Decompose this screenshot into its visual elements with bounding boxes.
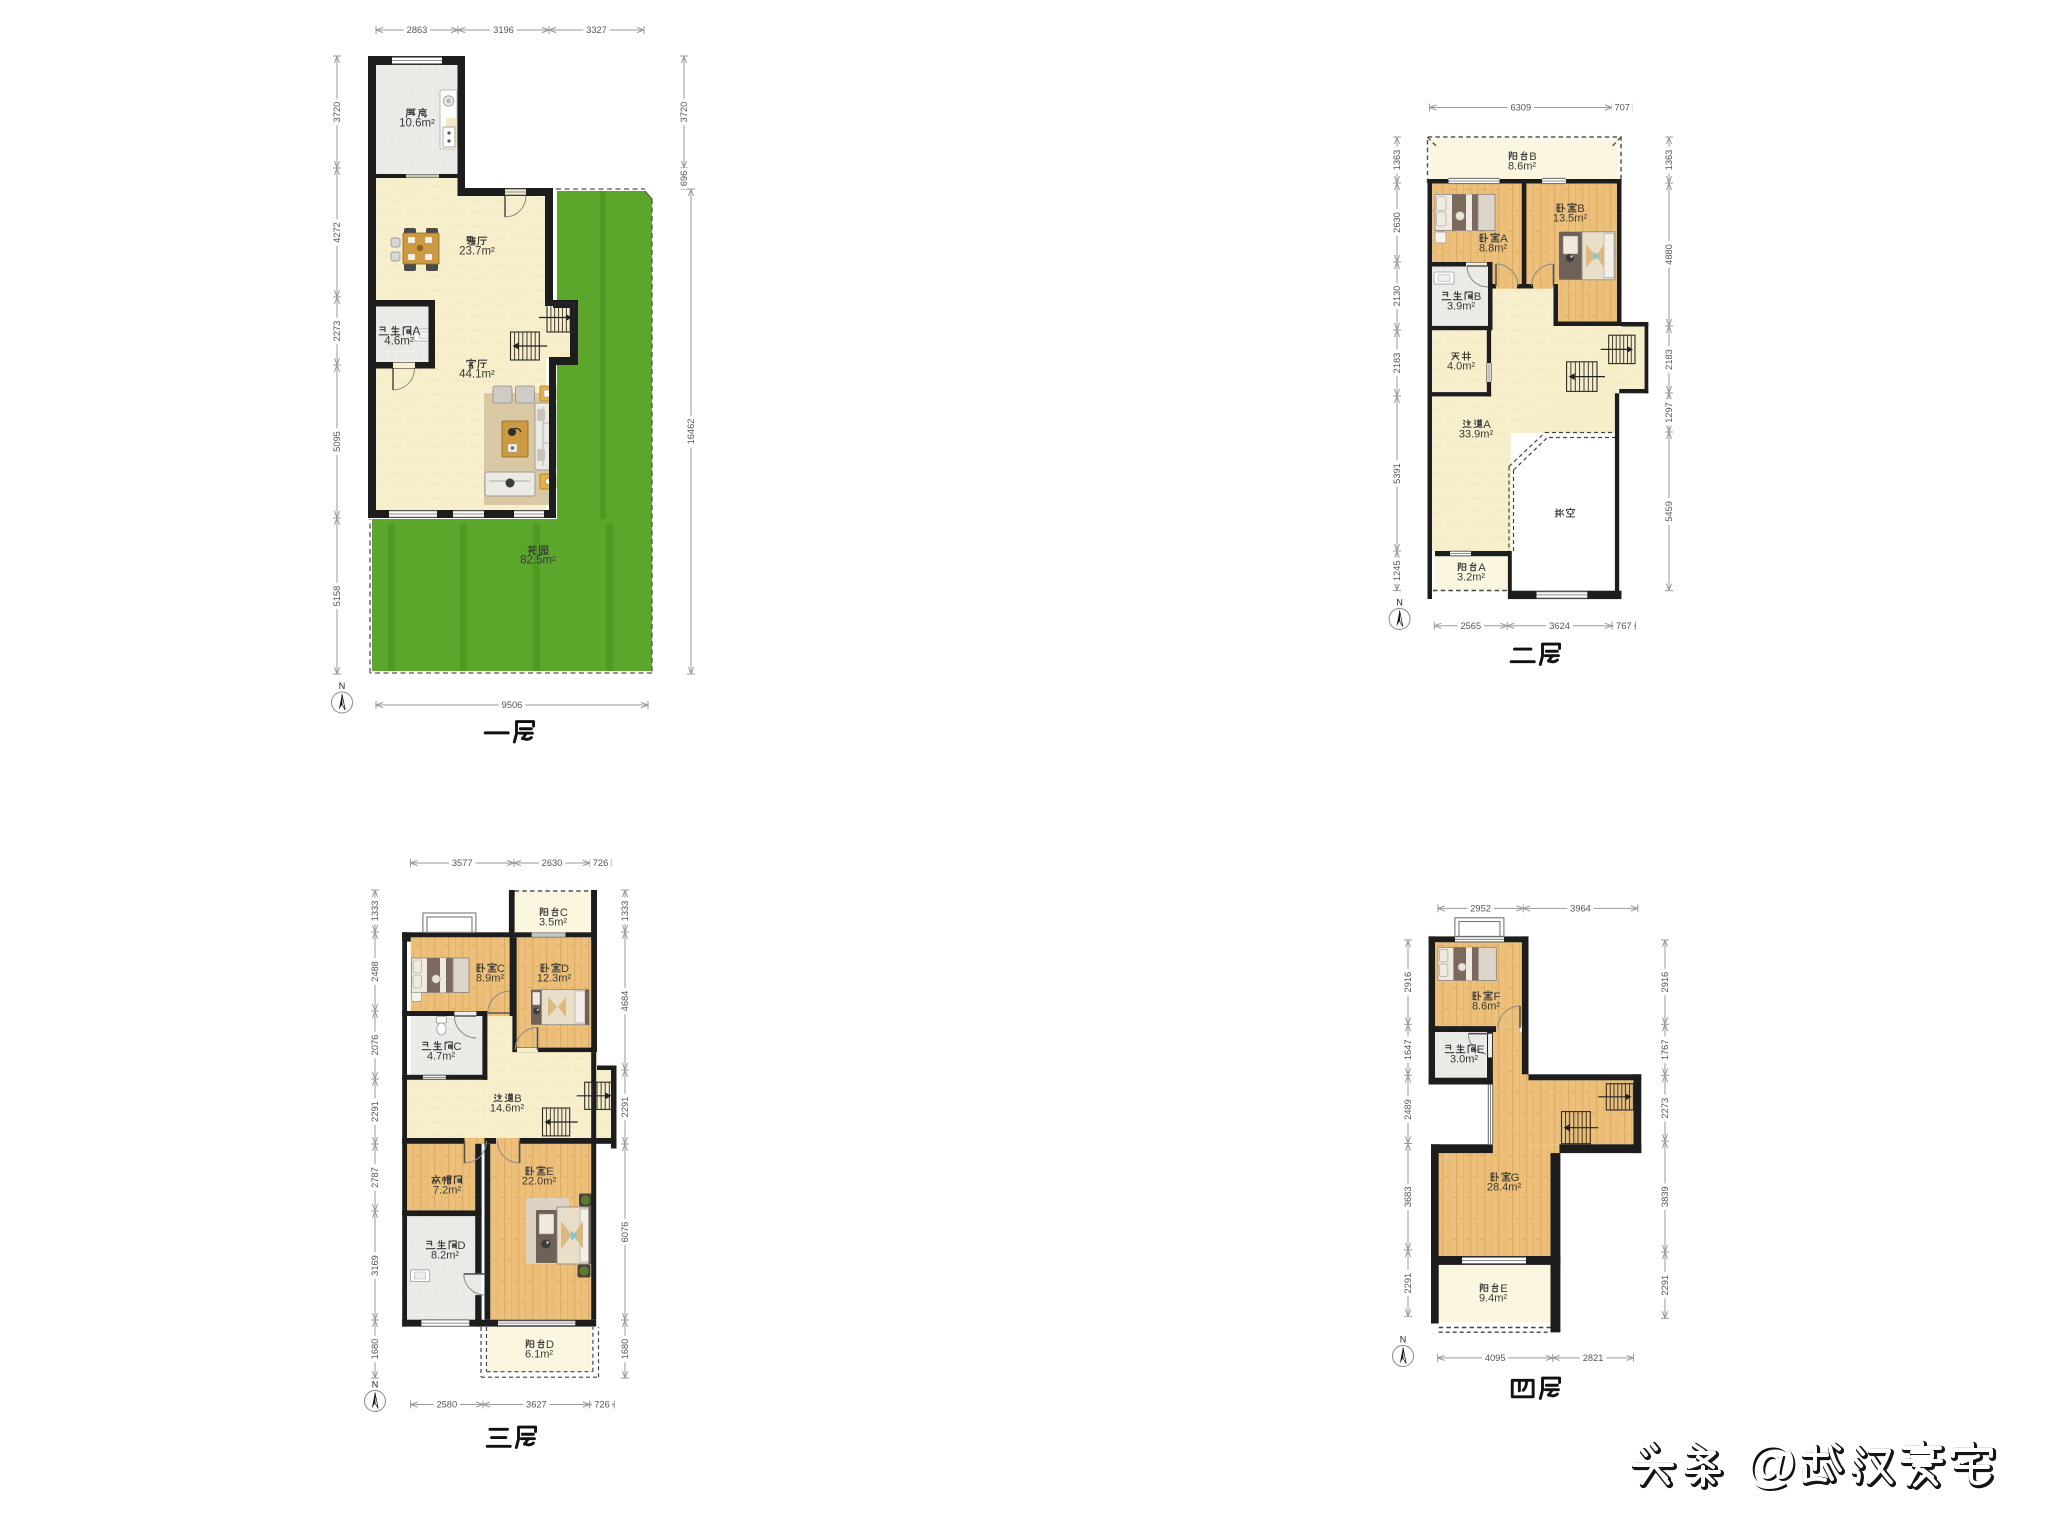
- svg-text:N: N: [1396, 598, 1403, 608]
- svg-text:3839: 3839: [1660, 1186, 1670, 1207]
- svg-text:1333: 1333: [370, 901, 380, 922]
- svg-text:3720: 3720: [679, 102, 689, 123]
- svg-text:33.9m²: 33.9m²: [1459, 429, 1494, 441]
- svg-text:1767: 1767: [1660, 1039, 1670, 1060]
- svg-text:2916: 2916: [1660, 972, 1670, 993]
- svg-text:8.2m²: 8.2m²: [431, 1250, 459, 1262]
- svg-text:726: 726: [594, 1400, 610, 1410]
- svg-text:2821: 2821: [1583, 1353, 1604, 1363]
- svg-text:8.6m²: 8.6m²: [1472, 1001, 1500, 1013]
- svg-text:5459: 5459: [1664, 501, 1674, 522]
- svg-text:22.0m²: 22.0m²: [522, 1176, 557, 1188]
- svg-text:2630: 2630: [1392, 212, 1402, 233]
- svg-text:4.7m²: 4.7m²: [427, 1051, 455, 1063]
- svg-text:4095: 4095: [1485, 1353, 1506, 1363]
- svg-text:10.6m²: 10.6m²: [399, 118, 435, 130]
- svg-text:3196: 3196: [493, 25, 514, 35]
- svg-text:2488: 2488: [370, 961, 380, 982]
- svg-text:16462: 16462: [686, 419, 696, 445]
- svg-text:5391: 5391: [1392, 463, 1402, 484]
- svg-text:2291: 2291: [1660, 1275, 1670, 1296]
- svg-text:3627: 3627: [526, 1400, 547, 1410]
- svg-text:696: 696: [679, 171, 689, 187]
- svg-text:7.2m²: 7.2m²: [433, 1185, 461, 1197]
- svg-text:5158: 5158: [332, 586, 342, 607]
- svg-text:767: 767: [1616, 621, 1632, 631]
- svg-text:1680: 1680: [620, 1339, 630, 1360]
- svg-text:2273: 2273: [1660, 1098, 1670, 1119]
- svg-text:3.0m²: 3.0m²: [1450, 1054, 1478, 1066]
- svg-text:1647: 1647: [1403, 1039, 1413, 1060]
- svg-text:2076: 2076: [370, 1035, 380, 1056]
- svg-text:8.9m²: 8.9m²: [476, 973, 504, 985]
- svg-text:1245: 1245: [1392, 560, 1402, 581]
- svg-text:6076: 6076: [620, 1222, 630, 1243]
- svg-text:N: N: [372, 1380, 379, 1390]
- svg-text:6.1m²: 6.1m²: [525, 1349, 553, 1361]
- svg-text:1680: 1680: [370, 1339, 380, 1360]
- svg-text:4.0m²: 4.0m²: [1447, 361, 1475, 373]
- svg-text:44.1m²: 44.1m²: [459, 369, 495, 381]
- svg-text:1333: 1333: [620, 901, 630, 922]
- svg-text:3683: 3683: [1403, 1186, 1413, 1207]
- svg-text:2273: 2273: [332, 321, 342, 342]
- svg-text:@: @: [1746, 1435, 1797, 1493]
- svg-text:3327: 3327: [586, 25, 607, 35]
- svg-text:8.6m²: 8.6m²: [1508, 161, 1536, 173]
- svg-text:2787: 2787: [370, 1167, 380, 1188]
- svg-text:2952: 2952: [1470, 904, 1491, 914]
- svg-text:N: N: [1400, 1335, 1407, 1345]
- svg-text:4.6m²: 4.6m²: [384, 336, 414, 348]
- svg-text:28.4m²: 28.4m²: [1487, 1182, 1522, 1194]
- svg-text:3169: 3169: [370, 1255, 380, 1276]
- svg-text:3.2m²: 3.2m²: [1457, 572, 1485, 584]
- svg-text:2183: 2183: [1392, 353, 1402, 374]
- svg-text:9506: 9506: [502, 700, 523, 710]
- svg-text:1363: 1363: [1664, 150, 1674, 171]
- svg-text:9.4m²: 9.4m²: [1479, 1293, 1507, 1305]
- svg-text:2580: 2580: [436, 1400, 457, 1410]
- svg-text:2565: 2565: [1460, 621, 1481, 631]
- svg-text:707: 707: [1614, 103, 1630, 113]
- svg-text:3720: 3720: [332, 102, 342, 123]
- svg-text:3577: 3577: [452, 858, 473, 868]
- svg-text:4880: 4880: [1664, 244, 1674, 265]
- svg-text:3964: 3964: [1570, 904, 1591, 914]
- svg-text:12.3m²: 12.3m²: [537, 973, 572, 985]
- svg-text:2183: 2183: [1664, 349, 1674, 370]
- svg-text:2130: 2130: [1392, 286, 1402, 307]
- svg-text:13.5m²: 13.5m²: [1553, 213, 1588, 225]
- svg-text:14.6m²: 14.6m²: [490, 1103, 525, 1115]
- svg-text:23.7m²: 23.7m²: [459, 246, 495, 258]
- svg-text:3624: 3624: [1549, 621, 1570, 631]
- svg-text:2916: 2916: [1403, 972, 1413, 993]
- svg-text:8.8m²: 8.8m²: [1479, 243, 1507, 255]
- svg-text:3.5m²: 3.5m²: [539, 917, 567, 929]
- svg-text:1363: 1363: [1392, 150, 1402, 171]
- svg-text:2291: 2291: [620, 1097, 630, 1118]
- svg-text:2291: 2291: [370, 1101, 380, 1122]
- svg-text:726: 726: [593, 858, 609, 868]
- svg-text:N: N: [339, 681, 346, 691]
- svg-text:1297: 1297: [1664, 402, 1674, 423]
- svg-text:6309: 6309: [1510, 103, 1531, 113]
- svg-text:2630: 2630: [542, 858, 563, 868]
- svg-text:2291: 2291: [1403, 1273, 1413, 1294]
- svg-text:2863: 2863: [407, 25, 428, 35]
- svg-text:4272: 4272: [332, 222, 342, 243]
- svg-text:3.9m²: 3.9m²: [1447, 301, 1475, 313]
- svg-text:82.5m²: 82.5m²: [520, 555, 556, 567]
- svg-text:5095: 5095: [332, 431, 342, 452]
- svg-text:2489: 2489: [1403, 1099, 1413, 1120]
- svg-text:4684: 4684: [620, 991, 630, 1012]
